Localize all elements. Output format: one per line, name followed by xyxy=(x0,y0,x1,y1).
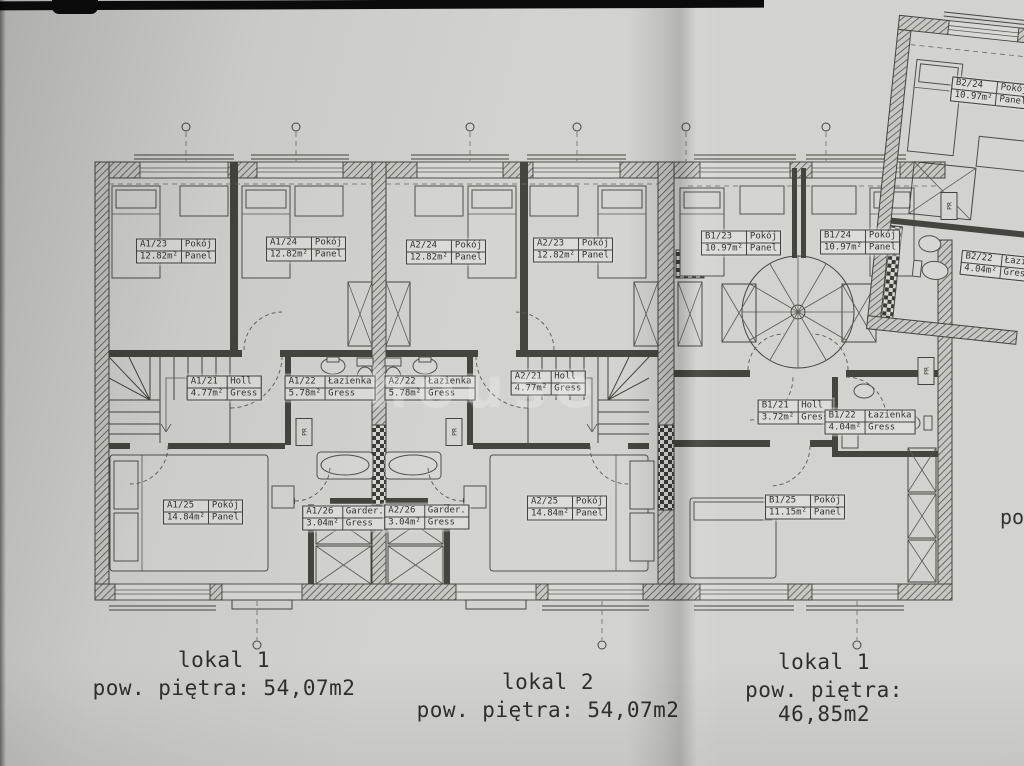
room-label-A1/21: A1/21Holl4.77m²Gress xyxy=(187,376,262,401)
room-label-B1/24: B1/24Pokój10.97m²Panel xyxy=(820,230,900,255)
lokal-name: lokal 1 xyxy=(724,650,924,674)
room-label-A2/24: A2/24Pokój12.82m²Panel xyxy=(406,240,486,265)
room-label-A1/24: A1/24Pokój12.82m²Panel xyxy=(266,237,346,262)
pr-shaft: PR xyxy=(446,418,463,446)
room-label-A2/21: A2/21Holl4.77m²Gress xyxy=(511,371,586,396)
toilet xyxy=(385,358,401,366)
edge-partial-text: po xyxy=(1000,505,1024,529)
room-label-A2/25: A2/25Pokój14.84m²Panel xyxy=(527,496,607,521)
lokal-1-left-summary: lokal 1 pow. piętra: 54,07m2 xyxy=(93,648,356,700)
desk xyxy=(180,186,228,216)
party-wall-a2-b1 xyxy=(658,162,674,584)
room-label-A1/22: A1/22Łazienka5.78m²Gress xyxy=(285,376,376,401)
lokal-name: lokal 2 xyxy=(417,670,680,694)
room-label-B1/25: B1/25Pokój11.15m²Panel xyxy=(765,495,845,520)
bed xyxy=(242,186,290,278)
lokal-area: pow. piętra: 46,85m2 xyxy=(745,678,903,726)
desk xyxy=(812,186,856,214)
room-label-A2/26: A2/26Garder.3.04m²Gress xyxy=(384,505,469,530)
staircase-b1-winder xyxy=(742,256,854,368)
pr-shaft: PR xyxy=(296,418,313,446)
toilet xyxy=(357,358,373,366)
room-label-B1/21: B1/21Holl3.72m²Gress xyxy=(758,400,833,425)
lokal-area: pow. piętra: 54,07m2 xyxy=(417,698,680,722)
bed xyxy=(112,186,160,278)
sink xyxy=(854,384,874,398)
lokal-1-right-summary: lokal 1 pow. piętra: 46,85m2 xyxy=(724,650,924,726)
lokal-2-summary: lokal 2 pow. piętra: 54,07m2 xyxy=(417,670,680,722)
pr-shaft: PR xyxy=(918,357,935,385)
room-label-A1/26: A1/26Garder.3.04m²Gress xyxy=(302,506,387,531)
lokal-area: pow. piętra: 54,07m2 xyxy=(93,676,356,700)
room-label-B1/23: B1/23Pokój10.97m²Panel xyxy=(701,231,781,256)
bed xyxy=(598,186,646,278)
desk xyxy=(415,186,463,216)
bed xyxy=(907,59,962,155)
balcony-door xyxy=(222,584,302,609)
room-label-A2/22: A2/22Łazienka5.78m²Gress xyxy=(385,376,476,401)
floor-plan-photo: { "colors":{"paper":"#d2d3cf","line":"#4… xyxy=(0,0,1024,766)
desk xyxy=(740,186,784,214)
desk xyxy=(295,186,343,216)
room-label-B1/22: B1/22Łazienka4.04m²Gress xyxy=(825,410,916,435)
paper-photo: .wall{fill:url(#hatch);stroke:#45453f;st… xyxy=(0,0,1024,766)
desk xyxy=(530,186,578,216)
room-label-A1/23: A1/23Pokój12.82m²Panel xyxy=(136,239,216,264)
toilet xyxy=(912,260,922,277)
pr-shaft: PR xyxy=(941,192,958,220)
balcony-door xyxy=(456,584,536,609)
lokal-name: lokal 1 xyxy=(93,648,356,672)
room-label-A1/25: A1/25Pokój14.84m²Panel xyxy=(163,500,243,525)
toilet xyxy=(924,416,932,430)
desk xyxy=(976,136,1024,171)
room-label-A2/23: A2/23Pokój12.82m²Panel xyxy=(533,238,613,263)
